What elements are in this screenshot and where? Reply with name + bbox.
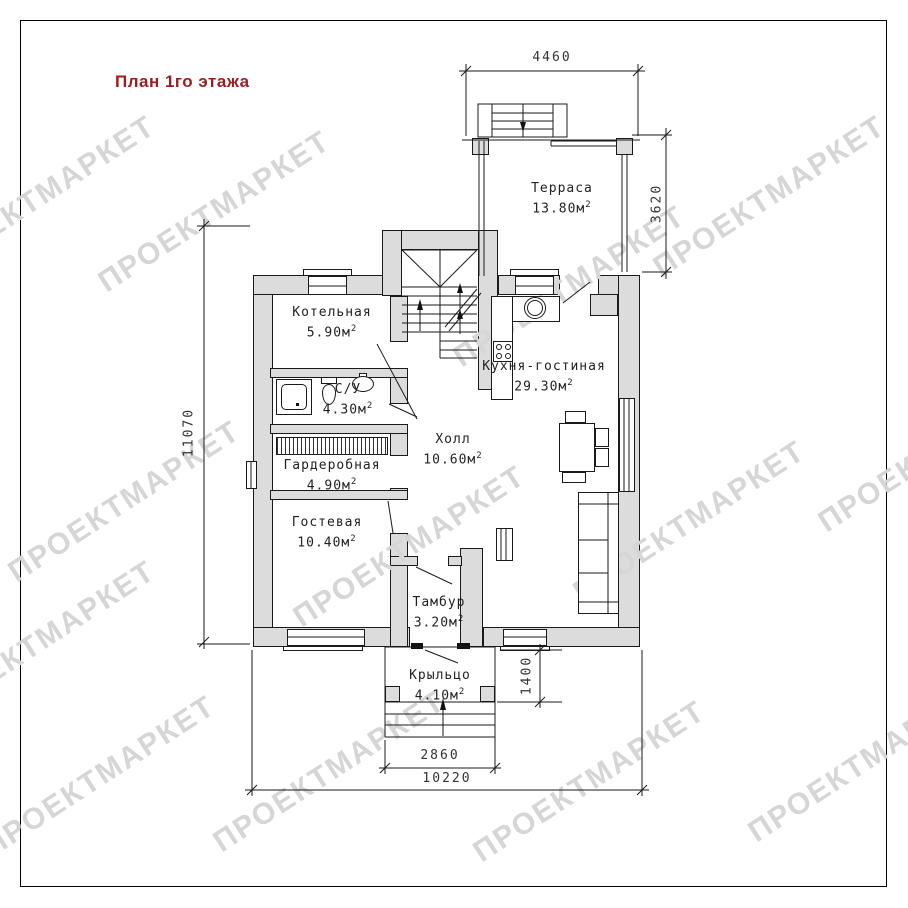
dim-porch-depth: 1400 [520,626,535,726]
floor-plan-page: ПРОЕКТМАРКЕТ ПРОЕКТМАРКЕТ ПРОЕКТМАРКЕТ П… [0,0,908,908]
room-label-porch: Крыльцо 4.10м2 [389,667,491,704]
dim-house-height: 11070 [182,383,197,483]
dim-house-width: 10220 [387,771,507,786]
room-label-hall: Холл 10.60м2 [395,431,511,468]
room-label-boiler: Котельная 5.90м2 [270,304,394,341]
dim-terrace-height: 3620 [650,154,665,254]
dim-porch-width: 2860 [390,748,490,763]
room-label-vestibule: Тамбур 3.20м2 [388,594,490,631]
plan-title: План 1го этажа [115,72,250,92]
room-label-guest: Гостевая 10.40м2 [265,514,389,551]
room-label-wardrobe: Гардеробная 4.90м2 [267,457,397,494]
room-label-kitchen: Кухня-гостиная 29.30м2 [471,358,617,395]
dim-terrace-width: 4460 [502,50,602,65]
room-label-bathroom: С/У 4.30м2 [302,381,394,418]
room-label-terrace: Терраса 13.80м2 [500,180,624,217]
